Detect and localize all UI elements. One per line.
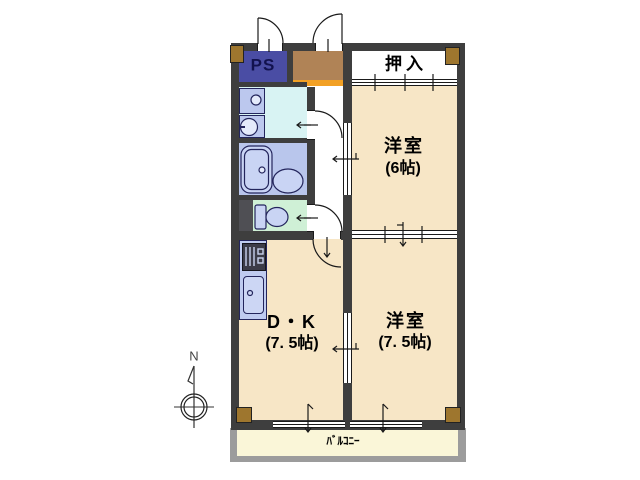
sink-drain (248, 291, 253, 296)
room75-size-label: (7. 5帖) (378, 335, 431, 351)
compass-north-label: N (189, 350, 198, 363)
dk-size-label: (7. 5帖) (265, 336, 318, 352)
fixture-symbols (239, 95, 303, 296)
ps-label: PS (251, 57, 276, 74)
toilet-door-arc (315, 205, 342, 232)
dk-name-label: D・K (267, 313, 317, 331)
room75-name-label: 洋室 (386, 312, 426, 330)
balcony-label: ﾊﾞﾙｺﾆｰ (327, 437, 360, 448)
washroom-door-arc (315, 111, 342, 138)
washing-machine-dial (251, 95, 261, 105)
closet-label: 押入 (385, 56, 427, 73)
stove-grill-lines (246, 247, 263, 266)
compass-north-arrow (188, 366, 194, 384)
toilet-tank (255, 205, 266, 229)
room6-name-label: 洋室 (384, 137, 424, 155)
compass (174, 366, 214, 428)
room6-size-label: (6帖) (385, 161, 421, 177)
floorplan-canvas: PS 押入 洋室 (6帖) D・K (7. 5帖) 洋室 (7. 5帖) ﾊﾞﾙ… (0, 0, 640, 480)
ps-door-arc (258, 18, 283, 43)
bath-wash-oval (273, 169, 303, 193)
door-arc-symbols (258, 14, 342, 267)
toilet-bowl (266, 208, 288, 227)
swing-direction-arrows (297, 122, 330, 257)
bathtub-drain (259, 167, 265, 173)
plan-symbols (0, 0, 640, 480)
entry-door-arc (313, 14, 342, 43)
